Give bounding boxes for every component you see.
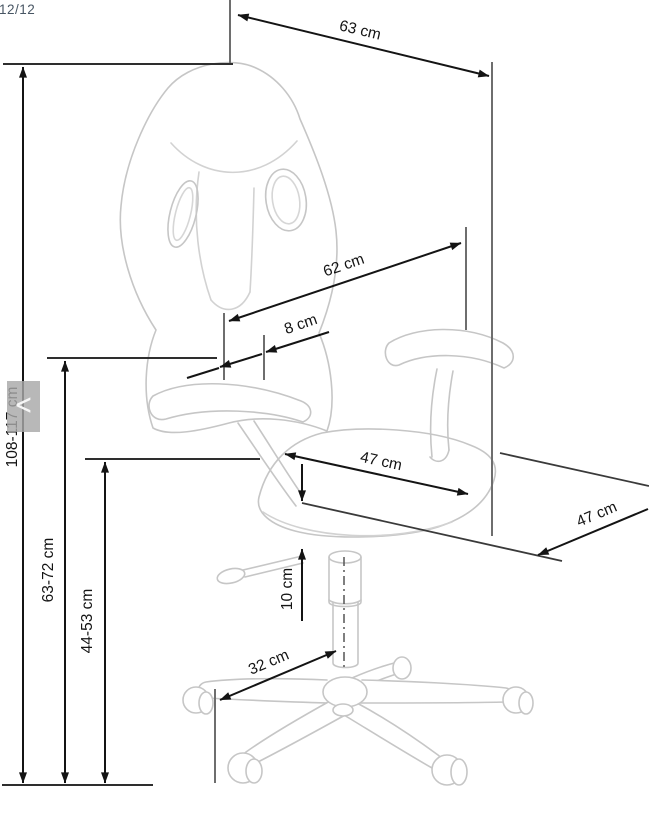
- base-star: [199, 657, 514, 769]
- image-counter: 12/12: [0, 2, 35, 17]
- product-dimension-diagram: 108-117 cm 63-72 cm 44-53 cm 63 cm 62 cm…: [0, 0, 649, 815]
- dimension-arrows: [23, 15, 648, 783]
- chevron-left-icon: <: [14, 391, 32, 420]
- chair-line-art: [120, 63, 533, 785]
- gas-lift: [329, 551, 361, 668]
- label-seat-to-floor: 44-53 cm: [79, 589, 97, 654]
- label-backrest-to-floor: 63-72 cm: [40, 538, 58, 603]
- label-gas-lift-travel: 10 cm: [279, 568, 297, 610]
- backrest-outline: [120, 63, 337, 433]
- diagram-canvas: [0, 0, 649, 815]
- carousel-prev-button[interactable]: <: [7, 381, 40, 432]
